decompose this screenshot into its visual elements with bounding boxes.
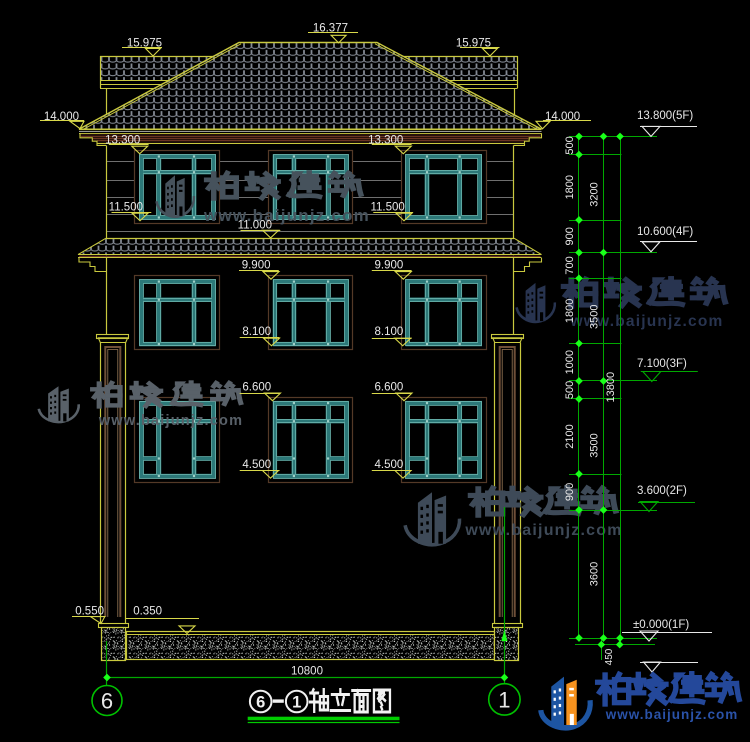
svg-text:6.600: 6.600 xyxy=(375,382,404,394)
svg-text:8.100: 8.100 xyxy=(375,326,404,338)
svg-text:13.800(5F): 13.800(5F) xyxy=(637,110,693,122)
svg-text:3500: 3500 xyxy=(589,305,601,329)
svg-text:13800: 13800 xyxy=(605,372,617,403)
svg-text:1000: 1000 xyxy=(564,350,576,374)
svg-text:500: 500 xyxy=(564,381,576,399)
svg-text:3.600(2F): 3.600(2F) xyxy=(637,485,687,497)
svg-text:0.550: 0.550 xyxy=(75,606,104,618)
svg-text:www.baijunjz.com: www.baijunjz.com xyxy=(98,413,243,429)
svg-text:900: 900 xyxy=(564,227,576,245)
svg-text:11.000: 11.000 xyxy=(238,219,272,231)
svg-text:1800: 1800 xyxy=(564,299,576,323)
svg-text:6: 6 xyxy=(256,693,265,711)
svg-text:11.500: 11.500 xyxy=(370,201,404,213)
svg-text:8.100: 8.100 xyxy=(242,326,271,338)
svg-text:1: 1 xyxy=(498,687,510,712)
svg-text:6.600: 6.600 xyxy=(242,382,271,394)
svg-text:6: 6 xyxy=(101,689,113,714)
svg-text:700: 700 xyxy=(564,256,576,274)
svg-text:4.500: 4.500 xyxy=(375,459,404,471)
svg-text:11.500: 11.500 xyxy=(109,201,143,213)
svg-text:500: 500 xyxy=(564,136,576,154)
svg-text:10.600(4F): 10.600(4F) xyxy=(637,226,693,238)
svg-text:0.350: 0.350 xyxy=(133,606,162,618)
svg-text:9.900: 9.900 xyxy=(242,260,271,272)
svg-text:3600: 3600 xyxy=(589,562,601,586)
svg-text:1800: 1800 xyxy=(564,175,576,199)
svg-text:900: 900 xyxy=(564,483,576,501)
svg-text:1: 1 xyxy=(292,693,301,711)
svg-text:10800: 10800 xyxy=(291,666,323,678)
svg-text:9.900: 9.900 xyxy=(375,260,404,272)
svg-text:±0.000(1F): ±0.000(1F) xyxy=(633,619,689,631)
svg-text:www.baijunjz.com: www.baijunjz.com xyxy=(605,707,739,722)
svg-text:7.100(3F): 7.100(3F) xyxy=(637,358,687,370)
svg-text:3500: 3500 xyxy=(589,433,601,457)
svg-text:450: 450 xyxy=(604,648,615,665)
svg-text:4.500: 4.500 xyxy=(242,459,271,471)
svg-text:2100: 2100 xyxy=(564,424,576,448)
svg-text:www.baijunjz.com: www.baijunjz.com xyxy=(203,206,370,225)
svg-text:www.baijunjz.com: www.baijunjz.com xyxy=(464,522,622,539)
svg-text:3200: 3200 xyxy=(589,182,601,206)
